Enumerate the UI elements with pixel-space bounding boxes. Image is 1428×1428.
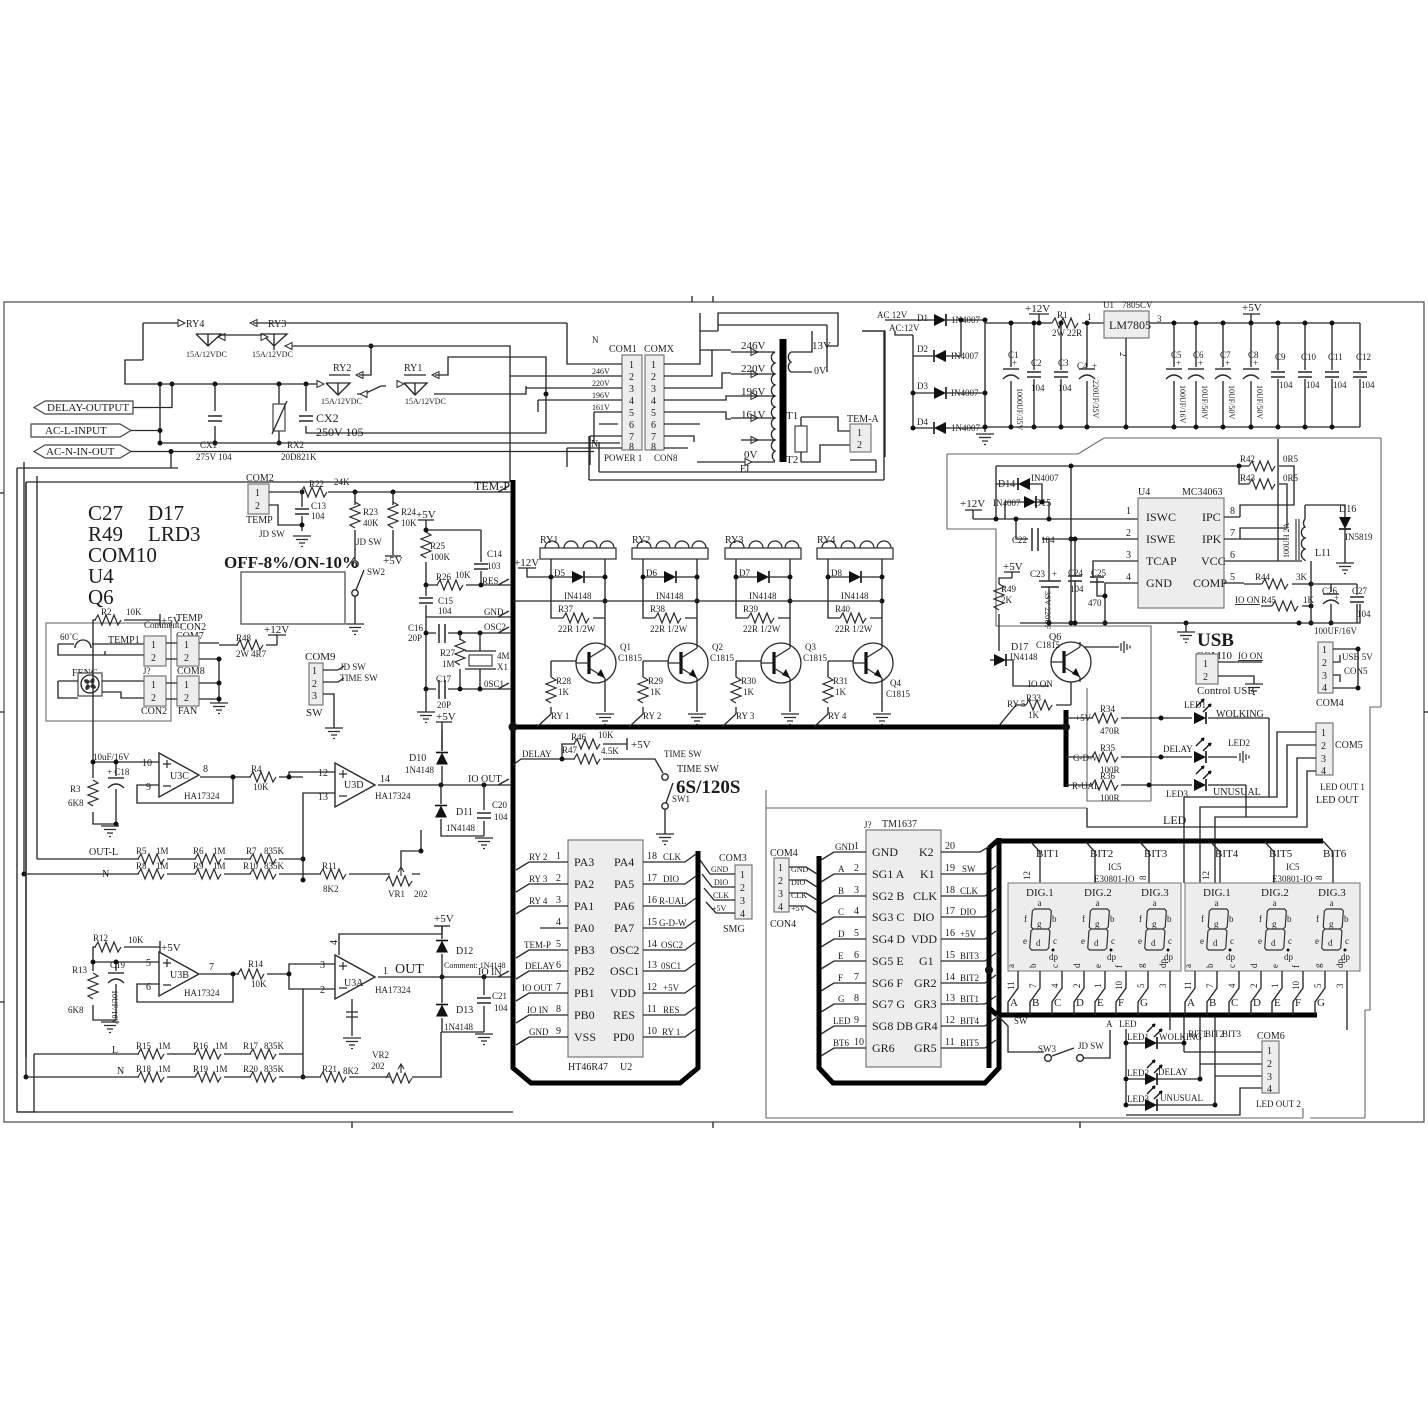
svg-text:RY4: RY4	[817, 535, 835, 546]
svg-text:J?: J?	[864, 820, 872, 830]
svg-text:+: +	[1225, 358, 1230, 368]
svg-text:2: 2	[184, 693, 189, 704]
svg-text:VR2: VR2	[372, 1050, 389, 1060]
svg-text:AC:12V: AC:12V	[889, 323, 920, 333]
svg-text:1: 1	[151, 680, 156, 691]
svg-text:DIO: DIO	[913, 910, 935, 924]
svg-text:104: 104	[1041, 535, 1055, 545]
svg-text:C15: C15	[438, 596, 454, 606]
svg-text:R7: R7	[246, 846, 257, 856]
svg-text:JD SW: JD SW	[356, 537, 382, 547]
svg-text:+5V: +5V	[161, 615, 181, 627]
svg-text:PA7: PA7	[614, 921, 634, 935]
svg-text:K2: K2	[919, 845, 934, 859]
svg-text:SG4 D: SG4 D	[872, 932, 905, 946]
svg-text:U2: U2	[620, 1062, 632, 1073]
svg-text:+: +	[1052, 569, 1057, 579]
svg-text:LED1: LED1	[1127, 1032, 1149, 1042]
svg-text:SG7 G: SG7 G	[872, 997, 905, 1011]
svg-text:a: a	[1183, 964, 1193, 968]
svg-text:COM8: COM8	[177, 666, 205, 677]
svg-text:C: C	[1231, 997, 1238, 1009]
svg-text:C1815: C1815	[886, 689, 911, 699]
svg-text:60˚C: 60˚C	[60, 632, 78, 642]
svg-text:1: 1	[1322, 645, 1327, 656]
svg-text:L11: L11	[1315, 548, 1331, 559]
svg-text:D4: D4	[917, 417, 928, 427]
svg-text:COM4: COM4	[770, 848, 798, 859]
svg-text:+12V: +12V	[1025, 303, 1050, 315]
svg-text:1: 1	[1203, 659, 1208, 670]
svg-text:8K2: 8K2	[343, 1066, 359, 1076]
svg-text:N: N	[117, 1066, 124, 1077]
svg-text:4.5K: 4.5K	[601, 746, 619, 756]
svg-text:+12V: +12V	[960, 498, 985, 510]
svg-text:2: 2	[1126, 528, 1131, 539]
svg-text:0SC1: 0SC1	[661, 961, 681, 971]
svg-text:COM4: COM4	[1316, 698, 1344, 709]
svg-text:8: 8	[629, 442, 634, 453]
svg-text:10K: 10K	[128, 935, 144, 945]
svg-text:RY1: RY1	[540, 535, 558, 546]
svg-text:GND: GND	[529, 1027, 549, 1037]
svg-text:+12V: +12V	[264, 624, 289, 636]
svg-text:+: +	[1198, 358, 1203, 368]
svg-text:835K: 835K	[264, 861, 285, 871]
svg-text:IN4007: IN4007	[993, 498, 1021, 508]
svg-text:5: 5	[651, 408, 656, 419]
svg-text:R31: R31	[833, 676, 848, 686]
svg-text:104: 104	[494, 812, 508, 822]
svg-text:CLK: CLK	[913, 889, 937, 903]
svg-text:1K: 1K	[1303, 595, 1315, 605]
svg-text:IO ON: IO ON	[1235, 595, 1260, 605]
svg-text:104: 104	[1279, 380, 1293, 390]
svg-text:1N4148: 1N4148	[444, 1022, 473, 1032]
svg-text:3: 3	[740, 896, 745, 907]
svg-text:RY3: RY3	[725, 535, 743, 546]
svg-text:1M: 1M	[156, 861, 169, 871]
svg-text:100UF/16V: 100UF/16V	[1314, 626, 1358, 636]
svg-text:7: 7	[209, 962, 214, 973]
svg-text:7: 7	[854, 972, 859, 983]
svg-text:Q1: Q1	[620, 642, 631, 652]
svg-text:+ C18: + C18	[107, 767, 130, 777]
svg-text:EI: EI	[740, 464, 749, 475]
svg-text:R13: R13	[72, 965, 88, 975]
svg-text:C14: C14	[487, 549, 503, 559]
svg-text:4: 4	[1227, 983, 1237, 988]
svg-text:PA6: PA6	[614, 899, 634, 913]
svg-text:JD SW: JD SW	[1078, 1041, 1104, 1051]
svg-text:D: D	[838, 929, 845, 939]
svg-text:7: 7	[1028, 983, 1038, 988]
svg-text:F: F	[1118, 997, 1124, 1009]
svg-text:IO OUT: IO OUT	[522, 983, 553, 993]
svg-text:2: 2	[556, 873, 561, 884]
svg-text:4: 4	[1267, 1084, 1272, 1095]
svg-text:R-UAL: R-UAL	[659, 896, 687, 906]
svg-text:B: B	[1209, 997, 1216, 1009]
svg-text:104: 104	[1306, 380, 1320, 390]
svg-text:R30: R30	[741, 676, 757, 686]
svg-text:COM9: COM9	[305, 651, 336, 663]
svg-text:C1815: C1815	[710, 653, 735, 663]
svg-text:POWER 1: POWER 1	[604, 453, 642, 463]
svg-text:10: 10	[854, 1037, 864, 1048]
svg-text:e: e	[1270, 964, 1280, 968]
svg-text:J?: J?	[143, 666, 151, 676]
svg-text:2: 2	[1072, 984, 1082, 989]
svg-text:RY 3: RY 3	[736, 711, 755, 721]
svg-text:TEMP: TEMP	[246, 515, 273, 526]
svg-text:TEM-A: TEM-A	[847, 414, 879, 425]
svg-text:202: 202	[414, 889, 428, 899]
svg-text:100R: 100R	[1100, 793, 1120, 803]
svg-text:G: G	[1140, 997, 1148, 1009]
svg-text:IC5: IC5	[1286, 862, 1300, 872]
svg-text:IN4148: IN4148	[1010, 652, 1038, 662]
svg-text:9: 9	[556, 1026, 561, 1037]
svg-text:15A/12VDC: 15A/12VDC	[321, 397, 362, 406]
svg-text:11: 11	[647, 1004, 657, 1015]
svg-text:DIO: DIO	[960, 907, 976, 917]
svg-text:1: 1	[1321, 728, 1326, 739]
svg-text:10K: 10K	[251, 979, 267, 989]
svg-text:RY 1: RY 1	[662, 1027, 680, 1037]
svg-text:16: 16	[945, 928, 955, 939]
svg-text:PB0: PB0	[574, 1008, 595, 1022]
svg-text:2: 2	[857, 440, 862, 451]
svg-text:6: 6	[556, 960, 561, 971]
svg-text:104: 104	[1333, 380, 1347, 390]
svg-text:CON2: CON2	[141, 706, 167, 717]
svg-text:OSC1: OSC1	[610, 964, 639, 978]
svg-text:13: 13	[945, 993, 955, 1004]
svg-text:1: 1	[151, 640, 156, 651]
svg-text:C20: C20	[492, 800, 508, 810]
svg-text:2: 2	[151, 653, 156, 664]
svg-text:3: 3	[312, 691, 317, 702]
svg-text:4M: 4M	[497, 651, 510, 661]
svg-text:D12: D12	[456, 946, 473, 957]
svg-text:3: 3	[629, 384, 634, 395]
svg-text:0SC1: 0SC1	[484, 679, 504, 689]
svg-text:14: 14	[945, 972, 955, 983]
svg-text:FAN: FAN	[178, 706, 197, 717]
svg-text:GND: GND	[835, 842, 855, 852]
svg-text:22R 1/2W: 22R 1/2W	[835, 624, 873, 634]
svg-text:1: 1	[1267, 1046, 1272, 1057]
svg-text:TIME SW: TIME SW	[340, 673, 378, 683]
svg-text:D10: D10	[409, 753, 426, 764]
svg-text:1000UF/35V: 1000UF/35V	[1015, 388, 1024, 430]
svg-text:d: d	[1249, 963, 1259, 968]
svg-text:1N4148: 1N4148	[446, 823, 475, 833]
svg-text:USB: USB	[1197, 630, 1234, 651]
svg-text:8: 8	[651, 442, 656, 453]
svg-text:2W 22R: 2W 22R	[1052, 328, 1082, 338]
svg-text:LED OUT: LED OUT	[1316, 795, 1359, 806]
svg-text:SMG: SMG	[723, 924, 745, 935]
svg-text:+5V: +5V	[416, 509, 436, 521]
svg-text:3: 3	[1322, 671, 1327, 682]
svg-text:U3B: U3B	[170, 970, 189, 981]
svg-text:UNUSUAL: UNUSUAL	[1160, 1093, 1203, 1103]
svg-text:5: 5	[1313, 983, 1323, 988]
svg-text:COM6: COM6	[1257, 1031, 1285, 1042]
svg-text:4: 4	[740, 909, 745, 920]
svg-text:C4: C4	[1077, 361, 1088, 371]
svg-text:SW3: SW3	[1038, 1044, 1057, 1054]
svg-text:D: D	[1253, 997, 1261, 1009]
svg-text:RY 4: RY 4	[529, 896, 548, 906]
svg-text:LED OUT 2: LED OUT 2	[1256, 1099, 1301, 1109]
svg-text:10K: 10K	[253, 782, 269, 792]
svg-text:12: 12	[945, 1015, 955, 1026]
svg-text:19: 19	[945, 863, 955, 874]
svg-text:COM3: COM3	[719, 853, 747, 864]
svg-text:3: 3	[1335, 983, 1345, 988]
svg-text:8K2: 8K2	[323, 884, 339, 894]
svg-text:15: 15	[945, 950, 955, 961]
svg-text:IN4148: IN4148	[564, 591, 592, 601]
svg-text:1K: 1K	[1028, 710, 1040, 720]
svg-text:GR6: GR6	[872, 1041, 895, 1055]
svg-text:1K: 1K	[650, 687, 662, 697]
svg-text:1: 1	[184, 640, 189, 651]
svg-text:ISWC: ISWC	[1146, 510, 1176, 524]
svg-text:OFF-8%/ON-10%: OFF-8%/ON-10%	[224, 553, 359, 572]
svg-text:SG6 F: SG6 F	[872, 976, 903, 990]
svg-text:10K: 10K	[455, 570, 471, 580]
svg-text:BIT4: BIT4	[960, 1016, 979, 1026]
svg-text:12: 12	[647, 982, 657, 993]
svg-text:2: 2	[1322, 658, 1327, 669]
svg-text:A: A	[1106, 1019, 1113, 1029]
svg-text:BIT2: BIT2	[960, 973, 979, 983]
svg-text:RES: RES	[613, 1008, 635, 1022]
svg-text:IO ON: IO ON	[1238, 651, 1263, 661]
svg-text:202: 202	[371, 1061, 385, 1071]
svg-text:220V: 220V	[592, 379, 610, 388]
svg-text:A: A	[1010, 997, 1018, 1009]
svg-text:2: 2	[854, 863, 859, 874]
svg-text:10UF/16V: 10UF/16V	[110, 990, 119, 1024]
svg-text:835K: 835K	[264, 846, 285, 856]
svg-text:2: 2	[312, 679, 317, 690]
svg-text:C: C	[1054, 997, 1061, 1009]
svg-text:R34: R34	[1100, 704, 1116, 714]
svg-text:5: 5	[556, 939, 561, 950]
svg-text:R14: R14	[248, 959, 264, 969]
svg-text:g: g	[1313, 963, 1323, 968]
svg-text:VCC: VCC	[1201, 554, 1226, 568]
svg-text:SW2: SW2	[367, 567, 385, 577]
svg-text:RES: RES	[663, 1005, 680, 1015]
svg-text:2: 2	[1203, 672, 1208, 683]
svg-text:PB3: PB3	[574, 943, 595, 957]
svg-text:PA5: PA5	[614, 877, 634, 891]
svg-text:1: 1	[857, 428, 862, 439]
svg-text:2: 2	[778, 876, 783, 887]
svg-text:DELAY: DELAY	[525, 961, 555, 971]
svg-text:IN4148: IN4148	[656, 591, 684, 601]
svg-text:GND: GND	[711, 865, 729, 874]
svg-text:SG2 B: SG2 B	[872, 889, 904, 903]
svg-text:GND: GND	[1146, 576, 1172, 590]
svg-text:4: 4	[1050, 983, 1060, 988]
svg-text:1M: 1M	[156, 846, 169, 856]
svg-text:1: 1	[255, 488, 260, 499]
svg-text:SW: SW	[1014, 1016, 1028, 1026]
svg-text:SG8 DB: SG8 DB	[872, 1019, 913, 1033]
svg-text:RY 1: RY 1	[551, 711, 569, 721]
svg-text:HA17324: HA17324	[184, 791, 220, 801]
svg-text:R11: R11	[322, 861, 337, 871]
svg-text:BIT1: BIT1	[960, 994, 979, 1004]
svg-text:+: +	[1253, 358, 1258, 368]
svg-text:IC5: IC5	[1108, 862, 1122, 872]
svg-text:VDD: VDD	[911, 932, 937, 946]
svg-text:8: 8	[203, 764, 208, 775]
svg-text:F: F	[1295, 997, 1301, 1009]
svg-text:RY1: RY1	[404, 363, 422, 374]
svg-text:10: 10	[1291, 981, 1301, 991]
svg-text:104: 104	[1031, 383, 1045, 393]
svg-text:4: 4	[778, 902, 783, 913]
svg-text:A: A	[838, 864, 845, 874]
svg-text:1: 1	[651, 360, 656, 371]
svg-text:IO OUT: IO OUT	[468, 774, 502, 785]
svg-text:R35: R35	[1100, 743, 1116, 753]
svg-text:3SV 220UF: 3SV 220UF	[1043, 591, 1052, 630]
svg-text:IO IN: IO IN	[527, 1005, 549, 1015]
svg-text:104: 104	[1357, 609, 1371, 619]
svg-text:10UF/50V: 10UF/50V	[1227, 385, 1236, 419]
svg-text:22R 1/2W: 22R 1/2W	[650, 624, 688, 634]
svg-text:12: 12	[318, 768, 328, 779]
svg-text:104: 104	[1361, 380, 1375, 390]
svg-text:BT6: BT6	[833, 1038, 850, 1048]
svg-text:+5V: +5V	[161, 942, 181, 954]
svg-text:C10: C10	[1301, 352, 1317, 362]
svg-text:22R 1/2W: 22R 1/2W	[743, 624, 781, 634]
svg-text:R44: R44	[1255, 572, 1271, 582]
svg-text:R20: R20	[243, 1064, 259, 1074]
svg-text:R36: R36	[1100, 771, 1116, 781]
svg-text:U3A: U3A	[344, 978, 364, 989]
svg-text:PA1: PA1	[574, 899, 594, 913]
svg-text:C12: C12	[1356, 352, 1371, 362]
svg-text:R24: R24	[401, 507, 417, 517]
svg-text:20D821K: 20D821K	[281, 452, 317, 462]
svg-text:g: g	[1136, 963, 1146, 968]
svg-text:GR5: GR5	[914, 1041, 937, 1055]
svg-text:R47: R47	[562, 745, 578, 755]
svg-text:PA4: PA4	[614, 855, 634, 869]
svg-text:AC 12V: AC 12V	[877, 310, 908, 320]
svg-text:20P: 20P	[408, 633, 422, 643]
svg-text:470R: 470R	[1100, 726, 1120, 736]
svg-text:+5V: +5V	[383, 555, 403, 567]
svg-text:R49: R49	[1001, 584, 1017, 594]
svg-text:104: 104	[311, 511, 325, 521]
svg-text:GND: GND	[484, 607, 504, 617]
svg-text:DELAY: DELAY	[522, 749, 552, 759]
svg-text:JD SW: JD SW	[340, 662, 366, 672]
svg-text:1: 1	[740, 870, 745, 881]
svg-text:IN4148: IN4148	[749, 591, 777, 601]
svg-text:R26: R26	[436, 572, 452, 582]
svg-text:PA0: PA0	[574, 921, 594, 935]
svg-text:RY4: RY4	[186, 319, 204, 330]
svg-text:G: G	[1317, 997, 1325, 1009]
svg-text:5: 5	[629, 408, 634, 419]
svg-text:18: 18	[647, 851, 657, 862]
svg-text:PA2: PA2	[574, 877, 594, 891]
svg-text:R28: R28	[556, 676, 572, 686]
svg-text:DELAY-OUTPUT: DELAY-OUTPUT	[47, 402, 129, 414]
svg-text:6: 6	[629, 420, 634, 431]
svg-text:275V 104: 275V 104	[196, 452, 232, 462]
svg-text:LED3: LED3	[1127, 1094, 1149, 1104]
svg-text:100UF/16V: 100UF/16V	[1178, 385, 1187, 423]
svg-text:104: 104	[1058, 383, 1072, 393]
svg-text:20: 20	[945, 841, 955, 852]
svg-text:+5V: +5V	[436, 711, 456, 723]
svg-text:10: 10	[1114, 981, 1124, 991]
svg-text:5: 5	[1230, 572, 1235, 583]
svg-text:OSC2: OSC2	[484, 622, 506, 632]
svg-text:C9: C9	[1275, 352, 1286, 362]
svg-text:100UH 2A: 100UH 2A	[1282, 522, 1291, 558]
svg-text:PB1: PB1	[574, 986, 595, 1000]
svg-text:OUT: OUT	[395, 962, 424, 977]
svg-text:220UF/35V: 220UF/35V	[1091, 380, 1100, 418]
svg-text:1K: 1K	[558, 687, 570, 697]
svg-text:103: 103	[487, 561, 501, 571]
svg-text:dp: dp	[1158, 959, 1168, 969]
svg-text:1K: 1K	[835, 687, 847, 697]
svg-text:CLK: CLK	[960, 886, 979, 896]
svg-text:C23: C23	[1030, 569, 1046, 579]
svg-text:C16: C16	[408, 623, 424, 633]
svg-text:9: 9	[854, 1015, 859, 1026]
svg-text:R3: R3	[70, 784, 81, 794]
svg-text:DIO: DIO	[714, 878, 728, 887]
svg-text:4: 4	[1126, 572, 1131, 583]
svg-text:RY 5: RY 5	[1007, 699, 1026, 709]
svg-text:3: 3	[1321, 754, 1326, 765]
svg-text:4: 4	[1321, 766, 1326, 777]
svg-text:TIME SW: TIME SW	[677, 764, 720, 775]
svg-text:IO IN: IO IN	[478, 967, 502, 978]
svg-text:2: 2	[320, 985, 325, 996]
svg-text:1: 1	[854, 841, 859, 852]
svg-text:10K: 10K	[126, 607, 142, 617]
svg-text:10K: 10K	[401, 518, 417, 528]
svg-text:VDD: VDD	[610, 986, 636, 1000]
svg-text:PA3: PA3	[574, 855, 594, 869]
svg-text:C22: C22	[1012, 535, 1027, 545]
svg-text:G-D-W: G-D-W	[659, 918, 687, 928]
svg-text:+: +	[1092, 361, 1097, 371]
svg-text:2: 2	[1321, 741, 1326, 752]
svg-text:17: 17	[647, 873, 657, 884]
svg-text:C21: C21	[492, 991, 507, 1001]
svg-text:RY3: RY3	[268, 319, 286, 330]
